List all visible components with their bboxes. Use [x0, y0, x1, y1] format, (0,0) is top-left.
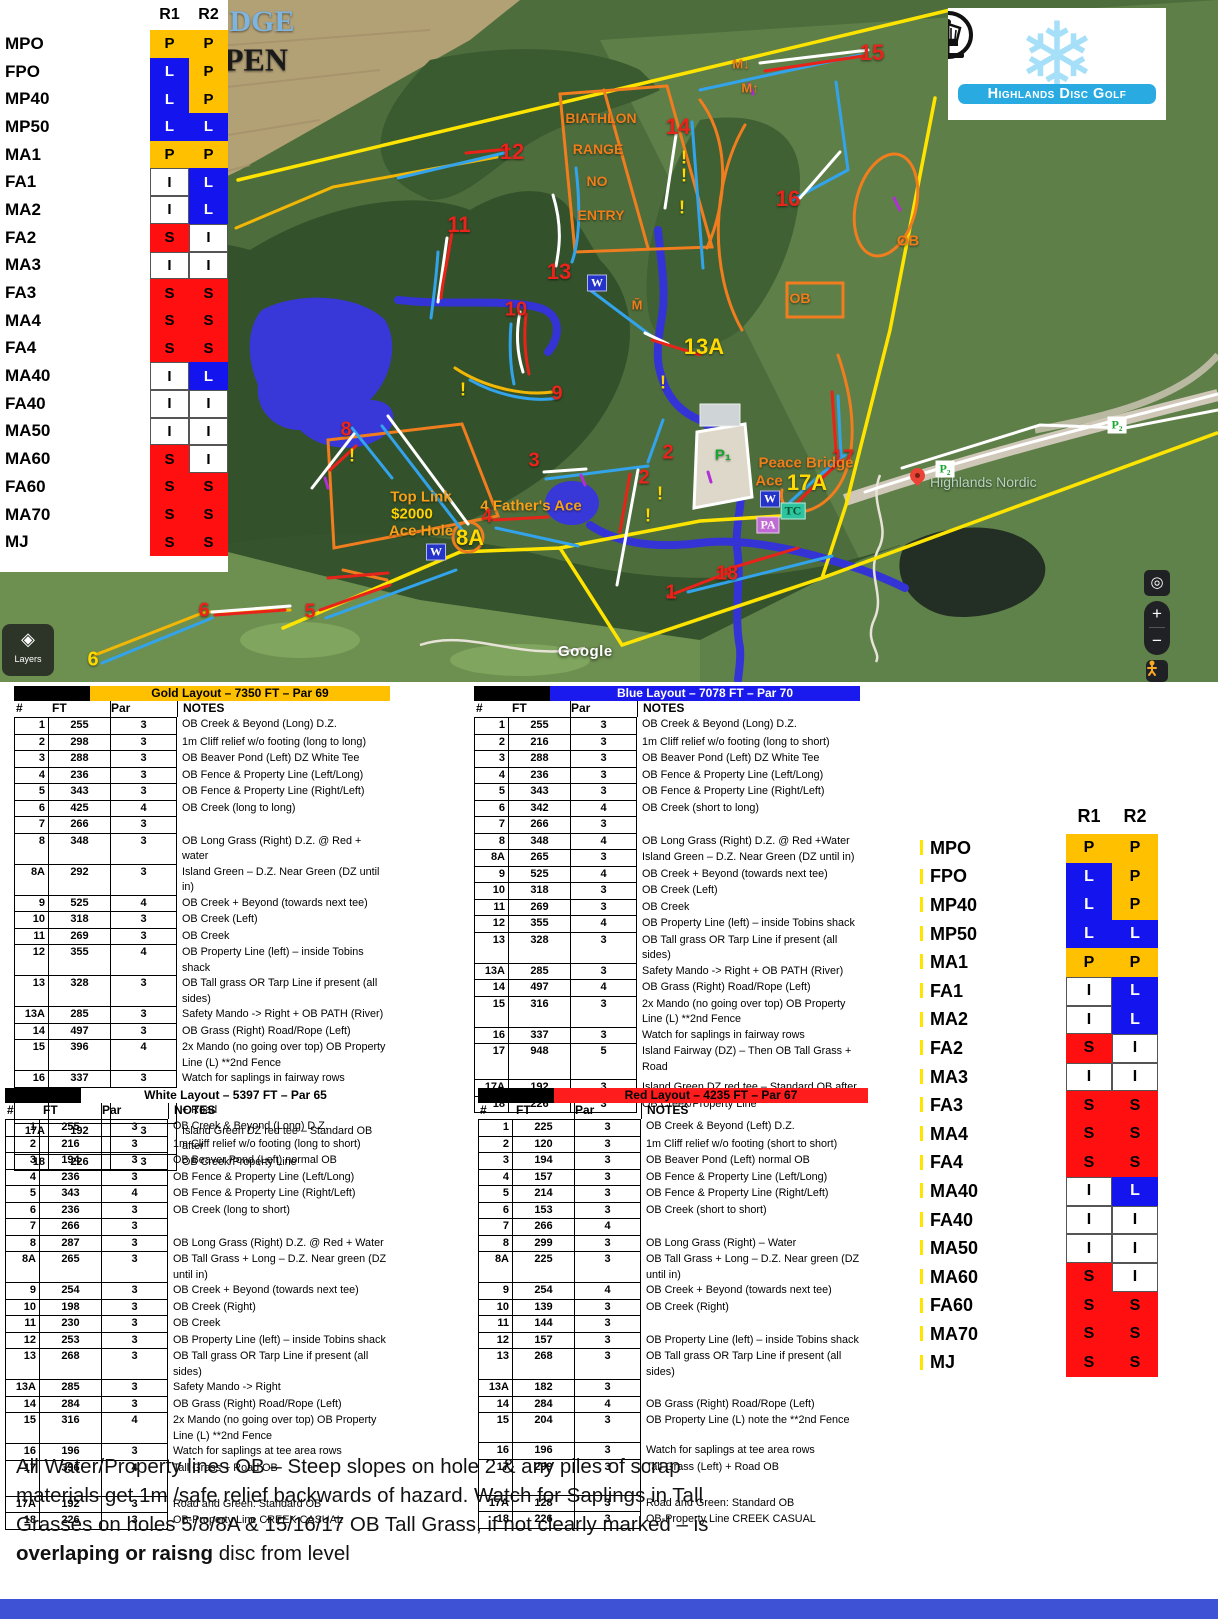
- hole-number: 7: [5, 1219, 39, 1236]
- notes: [177, 817, 390, 834]
- par: 3: [110, 735, 177, 752]
- table-row: 53433OB Fence & Property Line (Right/Lef…: [14, 784, 390, 801]
- distance-ft: 337: [48, 1071, 110, 1088]
- division-label: MA70: [0, 501, 150, 529]
- legend-row: MA4SS: [918, 1120, 1158, 1149]
- hole-number: 11: [5, 1316, 39, 1333]
- hole-number: 8: [474, 834, 508, 851]
- par: 3: [574, 1170, 641, 1187]
- notes: [637, 817, 860, 834]
- notes: OB Fence & Property Line (Left/Long): [641, 1170, 868, 1187]
- notes: OB Property Line (left) – inside Tobins …: [168, 1333, 390, 1350]
- par: 3: [110, 1071, 177, 1088]
- division-label: MP40: [918, 891, 1066, 920]
- distance-ft: 214: [512, 1186, 574, 1203]
- distance-ft: 287: [39, 1236, 101, 1253]
- legend-header: R1R2: [0, 6, 228, 30]
- tee-assignment-cell: I: [1066, 1063, 1112, 1092]
- par: 4: [110, 896, 177, 913]
- table-row: 163373Watch for saplings in fairway rows: [14, 1071, 390, 1088]
- banner-black-box: [14, 686, 90, 701]
- par: 3: [110, 751, 177, 768]
- table-row: 179485Island Fairway (DZ) – Then OB Tall…: [474, 1044, 860, 1080]
- tee-assignment-cell: I: [1112, 1234, 1158, 1263]
- legend-row: MA70SS: [918, 1320, 1158, 1349]
- par: 3: [570, 817, 637, 834]
- notes: [641, 1316, 868, 1333]
- table-row: 152043OB Property Line (L) note the **2n…: [478, 1413, 868, 1443]
- division-label: FA60: [918, 1292, 1066, 1321]
- notes: OB Creek (long to short): [168, 1203, 390, 1220]
- tee-assignment-cell: L: [150, 113, 189, 141]
- par: 3: [110, 929, 177, 946]
- division-label: FA4: [0, 335, 150, 363]
- map-badge: PA: [756, 517, 779, 534]
- notes: OB Grass (Right) Road/Rope (Left): [637, 980, 860, 997]
- distance-ft: 194: [39, 1153, 101, 1170]
- tee-assignment-cell: S: [189, 528, 228, 556]
- table-row: 111443: [478, 1316, 868, 1333]
- tee-assignment-cell: I: [189, 224, 228, 252]
- par: 3: [110, 976, 177, 1007]
- hole-number: 13: [14, 976, 48, 1007]
- par: 3: [574, 1186, 641, 1203]
- hole-number: 8: [478, 1236, 512, 1253]
- notes: OB Tall grass OR Tarp Line if present (a…: [177, 976, 390, 1007]
- par: 3: [101, 1397, 168, 1414]
- notes: OB Fence & Property Line (Right/Left): [168, 1186, 390, 1203]
- par: 4: [110, 945, 177, 976]
- notes: OB Fence & Property Line (Right/Left): [637, 784, 860, 801]
- hole-number: 4: [14, 768, 48, 785]
- division-label: FPO: [918, 863, 1066, 892]
- legend-row: MA3II: [918, 1063, 1158, 1092]
- division-label: MJ: [0, 528, 150, 556]
- distance-ft: 253: [39, 1333, 101, 1350]
- notes: OB Beaver Pond (Left) normal OB: [641, 1153, 868, 1170]
- table-row: 13A2853Safety Mando -> Right + OB PATH (…: [474, 964, 860, 981]
- par: 3: [570, 850, 637, 867]
- notes: 1m Cliff relief w/o footing (long to sho…: [168, 1137, 390, 1154]
- division-label: FA2: [918, 1034, 1066, 1063]
- legend-row: MA3II: [0, 252, 228, 280]
- par: 3: [110, 912, 177, 929]
- hole-number: 9: [474, 867, 508, 884]
- hole-number: 4: [474, 768, 508, 785]
- table-row: 42363OB Fence & Property Line (Left/Long…: [5, 1170, 390, 1187]
- notes: OB Tall grass OR Tarp Line if present (a…: [168, 1349, 390, 1380]
- hole-number: 16: [474, 1028, 508, 1045]
- hole-number: 3: [478, 1153, 512, 1170]
- table-row: 101983OB Creek (Right): [5, 1300, 390, 1317]
- distance-ft: 268: [512, 1349, 574, 1380]
- par: 3: [574, 1119, 641, 1137]
- tee-assignment-cell: P: [150, 141, 189, 169]
- hole-number: 5: [474, 784, 508, 801]
- layout-banner: White Layout – 5397 FT – Par 65: [5, 1088, 390, 1103]
- par: 3: [101, 1170, 168, 1187]
- par: 3: [101, 1153, 168, 1170]
- table-row: 64254OB Creek (long to long): [14, 801, 390, 818]
- tee-assignment-cell: I: [150, 168, 189, 196]
- table-row: 1539642x Mando (no going over top) OB Pr…: [14, 1040, 390, 1071]
- column-header: Par: [570, 701, 637, 717]
- notes: OB Long Grass (Right) – Water: [641, 1236, 868, 1253]
- legend-row: MP50LL: [918, 920, 1158, 949]
- division-label: MA50: [0, 418, 150, 446]
- table-row: 72663: [474, 817, 860, 834]
- table-row: 122533OB Property Line (left) – inside T…: [5, 1333, 390, 1350]
- hole-number: 11: [474, 900, 508, 917]
- tee-assignment-cell: I: [189, 418, 228, 446]
- distance-ft: 348: [48, 834, 110, 865]
- tee-assignment-cell: I: [1112, 1206, 1158, 1235]
- par: 3: [101, 1300, 168, 1317]
- notes: OB Grass (Right) Road/Rope (Left): [641, 1397, 868, 1414]
- table-row: 142843OB Grass (Right) Road/Rope (Left): [5, 1397, 390, 1414]
- table-row: 53434OB Fence & Property Line (Right/Lef…: [5, 1186, 390, 1203]
- distance-ft: 236: [39, 1170, 101, 1187]
- footnote: All Water/Property lines OB – Steep slop…: [16, 1452, 766, 1568]
- par: 3: [570, 735, 637, 752]
- tee-assignment-cell: S: [1066, 1034, 1112, 1063]
- notes: OB Fence & Property Line (Left/Long): [168, 1170, 390, 1187]
- par: 3: [570, 964, 637, 981]
- division-label: MA60: [918, 1263, 1066, 1292]
- legend-row: FA4SS: [918, 1149, 1158, 1178]
- distance-ft: 497: [48, 1024, 110, 1041]
- notes: 2x Mando (no going over top) OB Property…: [637, 997, 860, 1028]
- column-header: #: [14, 701, 48, 717]
- tee-assignment-cell: S: [150, 307, 189, 335]
- tee-assignment-cell: I: [150, 252, 189, 280]
- par: 3: [101, 1203, 168, 1220]
- tee-assignment-cell: I: [1112, 1263, 1158, 1292]
- hole-number: 4: [5, 1170, 39, 1187]
- par: 4: [570, 801, 637, 818]
- footnote-text: All Water/Property lines OB – Steep slop…: [16, 1455, 708, 1536]
- notes: OB Creek (Right): [641, 1300, 868, 1317]
- tee-assignment-cell: S: [1112, 1292, 1158, 1321]
- division-label: MA60: [0, 445, 150, 473]
- division-label: MPO: [0, 30, 150, 58]
- notes: OB Creek + Beyond (towards next tee): [177, 896, 390, 913]
- tee-assignment-cell: S: [189, 335, 228, 363]
- notes: OB Tall Grass + Long – D.Z. Near green (…: [168, 1252, 390, 1283]
- distance-ft: 236: [39, 1203, 101, 1220]
- par: 5: [570, 1044, 637, 1080]
- layout-title: Gold Layout – 7350 FT – Par 69: [90, 686, 390, 701]
- distance-ft: 328: [508, 933, 570, 964]
- table-row: 72663: [5, 1219, 390, 1236]
- tee-assignment-cell: I: [1066, 1177, 1112, 1206]
- distance-ft: 497: [508, 980, 570, 997]
- zoom-out-button[interactable]: −: [1144, 628, 1170, 654]
- hole-number: 10: [478, 1300, 512, 1317]
- legend-row: MP50LL: [0, 113, 228, 141]
- table-row: 52143OB Fence & Property Line (Right/Lef…: [478, 1186, 868, 1203]
- pegman-control[interactable]: [1146, 660, 1168, 682]
- tee-assignment-cell: S: [150, 335, 189, 363]
- bottom-bar: [0, 1599, 1218, 1619]
- division-label: MA3: [0, 252, 150, 280]
- banner-black-box: [5, 1088, 81, 1103]
- legend-row: MA1PP: [0, 141, 228, 169]
- distance-ft: 355: [48, 945, 110, 976]
- hole-number: 10: [5, 1300, 39, 1317]
- hole-number: 13: [478, 1349, 512, 1380]
- layout-title: Blue Layout – 7078 FT – Par 70: [550, 686, 860, 701]
- notes: OB Creek + Beyond (towards next tee): [168, 1283, 390, 1300]
- tee-assignment-cell: L: [150, 58, 189, 86]
- distance-ft: 337: [508, 1028, 570, 1045]
- legend-row: MP40LP: [918, 891, 1158, 920]
- notes: OB Creek + Beyond (towards next tee): [637, 867, 860, 884]
- table-row: 95254OB Creek + Beyond (towards next tee…: [474, 867, 860, 884]
- distance-ft: 316: [508, 997, 570, 1028]
- notes: OB Creek (short to short): [641, 1203, 868, 1220]
- table-row: 101393OB Creek (Right): [478, 1300, 868, 1317]
- column-header: #: [5, 1103, 39, 1119]
- zoom-in-button[interactable]: +: [1144, 601, 1170, 627]
- par: 4: [101, 1186, 168, 1203]
- table-row: 133283OB Tall grass OR Tarp Line if pres…: [474, 933, 860, 964]
- distance-ft: 292: [48, 865, 110, 896]
- pegman-icon: [1146, 660, 1158, 676]
- compass-control[interactable]: ◎: [1144, 570, 1170, 596]
- division-label: FA4: [918, 1149, 1066, 1178]
- hole-number: 13: [5, 1349, 39, 1380]
- hole-number: 15: [14, 1040, 48, 1071]
- tee-assignment-cell: P: [1066, 948, 1112, 977]
- table-row: 123554OB Property Line (left) – inside T…: [474, 916, 860, 933]
- hole-number: 8A: [474, 850, 508, 867]
- distance-ft: 396: [48, 1040, 110, 1071]
- notes: Island Green – D.Z. Near Green (DZ until…: [177, 865, 390, 896]
- banner-black-box: [474, 686, 550, 701]
- table-row: 41573OB Fence & Property Line (Left/Long…: [478, 1170, 868, 1187]
- hole-number: 3: [474, 751, 508, 768]
- tee-assignment-cell: S: [150, 279, 189, 307]
- table-row: 212031m Cliff relief w/o footing (short …: [478, 1137, 868, 1154]
- distance-ft: 525: [48, 896, 110, 913]
- distance-ft: 266: [512, 1219, 574, 1236]
- distance-ft: 343: [508, 784, 570, 801]
- tee-assignment-cell: L: [1066, 891, 1112, 920]
- tee-assignment-cell: L: [150, 85, 189, 113]
- distance-ft: 225: [512, 1252, 574, 1283]
- tee-assignment-cell: P: [1112, 863, 1158, 892]
- banner-black-box: [478, 1088, 554, 1103]
- google-watermark: Google: [558, 643, 613, 660]
- distance-ft: 288: [508, 751, 570, 768]
- table-row: 72664: [478, 1219, 868, 1236]
- hole-number: 15: [474, 997, 508, 1028]
- distance-ft: 254: [39, 1283, 101, 1300]
- hole-number: 9: [14, 896, 48, 913]
- hole-number: 13A: [478, 1380, 512, 1397]
- notes: OB Grass (Right) Road/Rope (Left): [168, 1397, 390, 1414]
- table-row: 112303OB Creek: [5, 1316, 390, 1333]
- hole-number: 15: [478, 1413, 512, 1443]
- par: 3: [101, 1380, 168, 1397]
- tee-assignment-cell: I: [1066, 977, 1112, 1006]
- division-label: FA2: [0, 224, 150, 252]
- map-badge: P₂: [936, 461, 955, 478]
- tee-assignment-cell: S: [150, 224, 189, 252]
- table-row: 12553OB Creek & Beyond (Long) D.Z.: [474, 717, 860, 735]
- table-row: 12253OB Creek & Beyond (Left) D.Z.: [478, 1119, 868, 1137]
- legend-row: FA3SS: [918, 1091, 1158, 1120]
- distance-ft: 216: [508, 735, 570, 752]
- par: 3: [570, 883, 637, 900]
- notes: OB Long Grass (Right) D.Z. @ Red + water: [177, 834, 390, 865]
- legend-row: MA2IL: [918, 1006, 1158, 1035]
- par: 3: [570, 933, 637, 964]
- par: 3: [110, 1024, 177, 1041]
- hole-number: 11: [478, 1316, 512, 1333]
- tee-assignment-cell: S: [1112, 1091, 1158, 1120]
- layers-control[interactable]: ◈ Layers: [2, 624, 54, 676]
- layers-label: Layers: [2, 654, 54, 664]
- table-header-row: #FTParNOTES: [474, 701, 860, 717]
- division-label: FPO: [0, 58, 150, 86]
- table-row: 221631m Cliff relief w/o footing (long t…: [474, 735, 860, 752]
- legend-row: MPOPP: [0, 30, 228, 58]
- table-row: 8A2653OB Tall Grass + Long – D.Z. Near g…: [5, 1252, 390, 1283]
- table-row: 8A2923Island Green – D.Z. Near Green (DZ…: [14, 865, 390, 896]
- tee-assignment-cell: S: [1112, 1120, 1158, 1149]
- distance-ft: 153: [512, 1203, 574, 1220]
- table-row: 32883OB Beaver Pond (Left) DZ White Tee: [14, 751, 390, 768]
- legend-row: FPOLP: [918, 863, 1158, 892]
- distance-ft: 266: [39, 1219, 101, 1236]
- hole-number: 14: [478, 1397, 512, 1414]
- table-row: 53433OB Fence & Property Line (Right/Lef…: [474, 784, 860, 801]
- table-row: 1531632x Mando (no going over top) OB Pr…: [474, 997, 860, 1028]
- hole-number: 1: [5, 1119, 39, 1137]
- tee-assignment-cell: I: [1066, 1234, 1112, 1263]
- distance-ft: 225: [512, 1119, 574, 1137]
- par: 3: [110, 1007, 177, 1024]
- notes: 1m Cliff relief w/o footing (long to lon…: [177, 735, 390, 752]
- column-header: FT: [39, 1103, 101, 1119]
- notes: Safety Mando -> Right: [168, 1380, 390, 1397]
- tee-assignment-cell: S: [150, 501, 189, 529]
- column-header: NOTES: [637, 701, 860, 717]
- hole-number: 14: [14, 1024, 48, 1041]
- par: 3: [101, 1333, 168, 1350]
- table-row: 13A1823: [478, 1380, 868, 1397]
- par: 3: [110, 768, 177, 785]
- division-label: MA4: [918, 1120, 1066, 1149]
- notes: OB Fence & Property Line (Right/Left): [641, 1186, 868, 1203]
- table-row: 142844OB Grass (Right) Road/Rope (Left): [478, 1397, 868, 1414]
- notes: OB Creek (short to long): [637, 801, 860, 818]
- logo-title: Highlands Disc Golf: [958, 84, 1156, 104]
- tee-assignment-cell: S: [1066, 1091, 1112, 1120]
- division-label: FA60: [0, 473, 150, 501]
- zoom-control[interactable]: + −: [1144, 601, 1170, 655]
- column-header: NOTES: [641, 1103, 868, 1119]
- column-header: NOTES: [177, 701, 390, 717]
- table-row: 133283OB Tall grass OR Tarp Line if pres…: [14, 976, 390, 1007]
- distance-ft: 157: [512, 1333, 574, 1350]
- par: 3: [110, 865, 177, 896]
- notes: OB Creek & Beyond (Long) D.Z.: [637, 717, 860, 735]
- table-row: 103183OB Creek (Left): [14, 912, 390, 929]
- division-label: MA40: [918, 1177, 1066, 1206]
- division-label: MA50: [918, 1234, 1066, 1263]
- par: 3: [574, 1236, 641, 1253]
- distance-ft: 269: [48, 929, 110, 946]
- hole-number: 1: [14, 717, 48, 735]
- notes: OB Tall grass OR Tarp Line if present (a…: [637, 933, 860, 964]
- map-badge: P₂: [1108, 417, 1127, 434]
- legend-row: MP40LP: [0, 85, 228, 113]
- tee-assignment-cell: S: [189, 473, 228, 501]
- notes: OB Tall grass OR Tarp Line if present (a…: [641, 1349, 868, 1380]
- distance-ft: 285: [508, 964, 570, 981]
- distance-ft: 343: [48, 784, 110, 801]
- table-row: 112693OB Creek: [14, 929, 390, 946]
- par: 3: [574, 1300, 641, 1317]
- hole-number: 9: [5, 1283, 39, 1300]
- division-label: FA1: [918, 977, 1066, 1006]
- tee-assignment-cell: I: [189, 390, 228, 418]
- course-flyer: Highlands Nordic Google ◈ Layers ◎ + − R…: [0, 0, 1218, 1619]
- par: 3: [574, 1349, 641, 1380]
- table-row: 123554OB Property Line (left) – inside T…: [14, 945, 390, 976]
- par: 4: [110, 801, 177, 818]
- par: 4: [570, 916, 637, 933]
- distance-ft: 318: [508, 883, 570, 900]
- hole-number: 6: [5, 1203, 39, 1220]
- hole-number: 11: [14, 929, 48, 946]
- table-row: 121573OB Property Line (left) – inside T…: [478, 1333, 868, 1350]
- hole-number: 10: [14, 912, 48, 929]
- par: 3: [101, 1283, 168, 1300]
- table-row: 83484OB Long Grass (Right) D.Z. @ Red +W…: [474, 834, 860, 851]
- par: 3: [570, 1028, 637, 1045]
- table-header-row: #FTParNOTES: [14, 701, 390, 717]
- legend-row: MA50II: [0, 418, 228, 446]
- tee-assignment-cell: P: [1112, 948, 1158, 977]
- hole-number: 12: [14, 945, 48, 976]
- hole-number: 2: [5, 1137, 39, 1154]
- notes: OB Property Line (L) note the **2nd Fenc…: [641, 1413, 868, 1443]
- hole-number: 6: [478, 1203, 512, 1220]
- notes: OB Creek & Beyond (Left) D.Z.: [641, 1119, 868, 1137]
- tee-assignment-cell: L: [1112, 977, 1158, 1006]
- division-label: FA3: [918, 1091, 1066, 1120]
- notes: [641, 1380, 868, 1397]
- distance-ft: 254: [512, 1283, 574, 1300]
- notes: OB Creek & Beyond (Long) D.Z.: [177, 717, 390, 735]
- tee-assignment-cell: L: [1112, 920, 1158, 949]
- division-label: MA2: [0, 196, 150, 224]
- notes: 1m Cliff relief w/o footing (short to sh…: [641, 1137, 868, 1154]
- notes: OB Creek (Left): [637, 883, 860, 900]
- distance-ft: 204: [512, 1413, 574, 1443]
- legend-round-header: R2: [189, 6, 228, 30]
- division-label: MA4: [0, 307, 150, 335]
- hole-number: 3: [5, 1153, 39, 1170]
- par: 3: [110, 817, 177, 834]
- division-legend-right: R1R2MPOPPFPOLPMP40LPMP50LLMA1PPFA1ILMA2I…: [918, 806, 1158, 1377]
- table-row: 12553OB Creek & Beyond (Long) D.Z.: [14, 717, 390, 735]
- par: 3: [570, 784, 637, 801]
